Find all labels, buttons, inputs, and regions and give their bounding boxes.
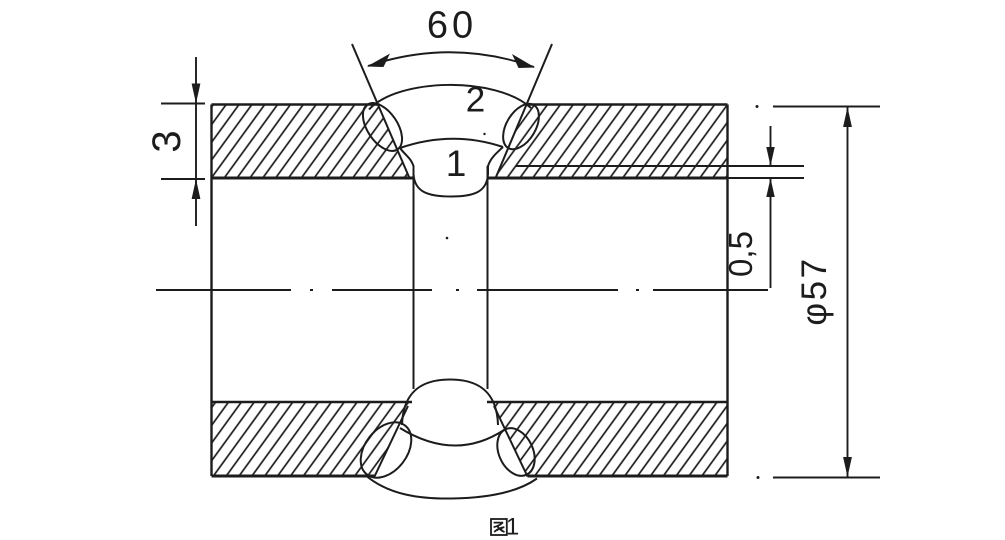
svg-text:1: 1 [446,143,467,184]
svg-text:2: 2 [466,81,485,120]
svg-text:φ57: φ57 [795,256,834,325]
svg-text:60: 60 [427,5,477,47]
svg-text:1: 1 [506,514,519,540]
svg-text:0,5: 0,5 [722,231,759,277]
svg-text:3: 3 [145,130,189,152]
